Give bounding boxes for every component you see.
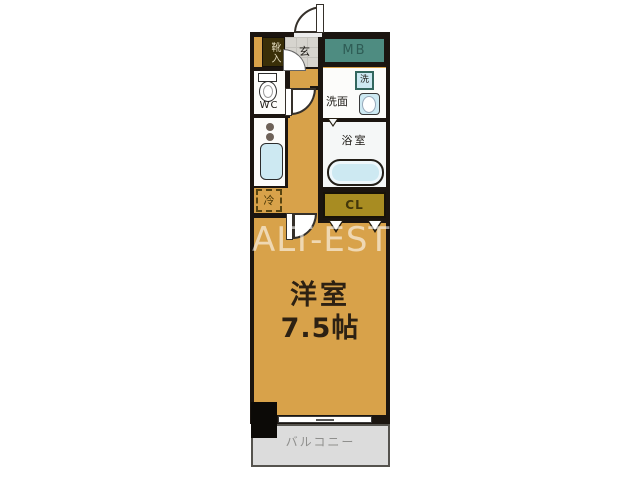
- hallway-door-leaf-icon: [285, 88, 292, 116]
- watermark-text: ALT-EST: [252, 220, 390, 260]
- refrigerator-space: 冷: [256, 189, 282, 212]
- main-room-name: 洋室: [254, 279, 386, 312]
- pillar: [251, 402, 277, 438]
- washing-machine-icon: 洗: [355, 71, 374, 90]
- washing-machine-label: 洗: [360, 76, 369, 85]
- meter-box: MB: [323, 37, 386, 64]
- wall: [250, 213, 286, 218]
- stove-burner-icon: [266, 133, 274, 141]
- kitchen-sink-icon: [260, 143, 283, 180]
- bathtub-icon: [327, 159, 384, 186]
- window-center-rail: [316, 419, 334, 421]
- washroom-label: 洗面: [326, 96, 348, 107]
- closet: CL: [323, 192, 386, 218]
- stove-burner-icon: [266, 123, 274, 131]
- wall: [250, 114, 290, 118]
- meter-box-label: MB: [342, 44, 366, 57]
- main-room-label: 洋室 7.5帖: [254, 279, 386, 345]
- wall: [322, 187, 390, 192]
- closet-label: CL: [345, 199, 363, 211]
- washroom-sink-bowl-icon: [362, 96, 376, 113]
- wall: [322, 63, 390, 67]
- wall: [254, 186, 286, 188]
- entrance-door-leaf-icon: [316, 4, 324, 33]
- wc-label: WC: [255, 100, 283, 112]
- entrance-label: 玄: [299, 46, 310, 57]
- wall: [285, 118, 288, 188]
- toilet-bowl-inner-icon: [263, 85, 273, 98]
- floorplan-canvas: バルコニー 靴入 MB CL WC 冷 洗 洗面: [0, 0, 640, 480]
- bathroom-label: 浴室: [323, 133, 386, 147]
- watermark: ALT-EST: [252, 219, 400, 261]
- main-room-size: 7.5帖: [254, 312, 386, 345]
- shoe-cabinet-label: 靴入: [269, 42, 279, 64]
- refrigerator-label: 冷: [264, 195, 275, 206]
- shoe-cabinet: 靴入: [262, 37, 285, 67]
